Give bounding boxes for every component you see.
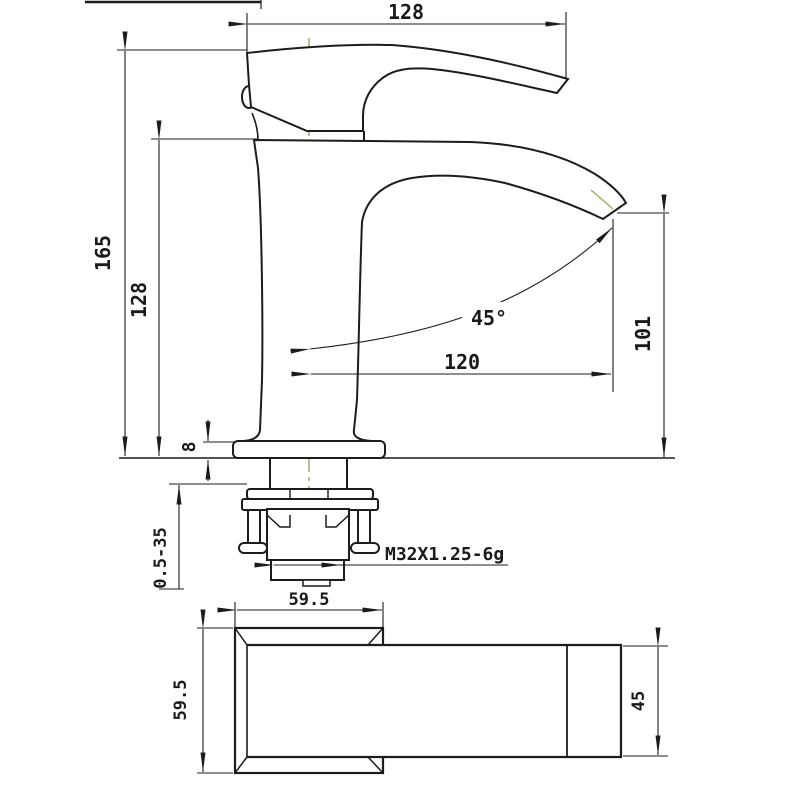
- bolt-nut-right: [351, 543, 379, 553]
- label-spout-reach: 120: [444, 350, 480, 374]
- locknut-washer: [247, 489, 373, 499]
- label-base-depth: 59.5: [171, 680, 191, 721]
- dome-left-arc: [252, 113, 258, 140]
- label-handle-top-width: 128: [388, 0, 424, 24]
- technical-drawing-page: 128 165 128 101 120 45° 8 0.5-35 M32X1.2…: [0, 0, 800, 800]
- label-base-width: 59.5: [289, 590, 330, 610]
- dim-total-height: [117, 50, 247, 456]
- cropped-border-line: [85, 0, 261, 9]
- top-view: [235, 628, 621, 773]
- label-handle-end-width: 45: [629, 691, 649, 711]
- label-total-height: 165: [91, 235, 115, 271]
- label-mounting-range: 0.5-35: [151, 527, 171, 588]
- tailpiece-step: [303, 580, 330, 586]
- threaded-tailpiece: [271, 560, 344, 580]
- dim-mounting-range: [159, 484, 247, 589]
- label-thread-spec: M32X1.25-6g: [385, 544, 504, 565]
- handle-plan-fill: [247, 645, 621, 757]
- faucet-dimension-diagram: 128 165 128 101 120 45° 8 0.5-35 M32X1.2…: [0, 0, 800, 800]
- bolt-right: [358, 510, 370, 543]
- faucet-handle: [247, 45, 568, 131]
- dim-body-height: [151, 139, 258, 456]
- label-plate-thickness: 8: [179, 442, 200, 453]
- dim-base-depth: [197, 628, 233, 773]
- dimension-labels: 128 165 128 101 120 45° 8 0.5-35 M32X1.2…: [91, 0, 655, 720]
- bolt-nut-left: [239, 543, 267, 553]
- label-spout-outlet-height: 101: [631, 316, 655, 352]
- faucet-body: [243, 140, 626, 441]
- label-spout-angle: 45°: [471, 306, 507, 330]
- deck-plate: [233, 441, 385, 458]
- dim-plate-thickness: [203, 420, 237, 481]
- bolt-left: [248, 510, 260, 543]
- front-view: [85, 0, 675, 588]
- label-body-height: 128: [127, 282, 151, 318]
